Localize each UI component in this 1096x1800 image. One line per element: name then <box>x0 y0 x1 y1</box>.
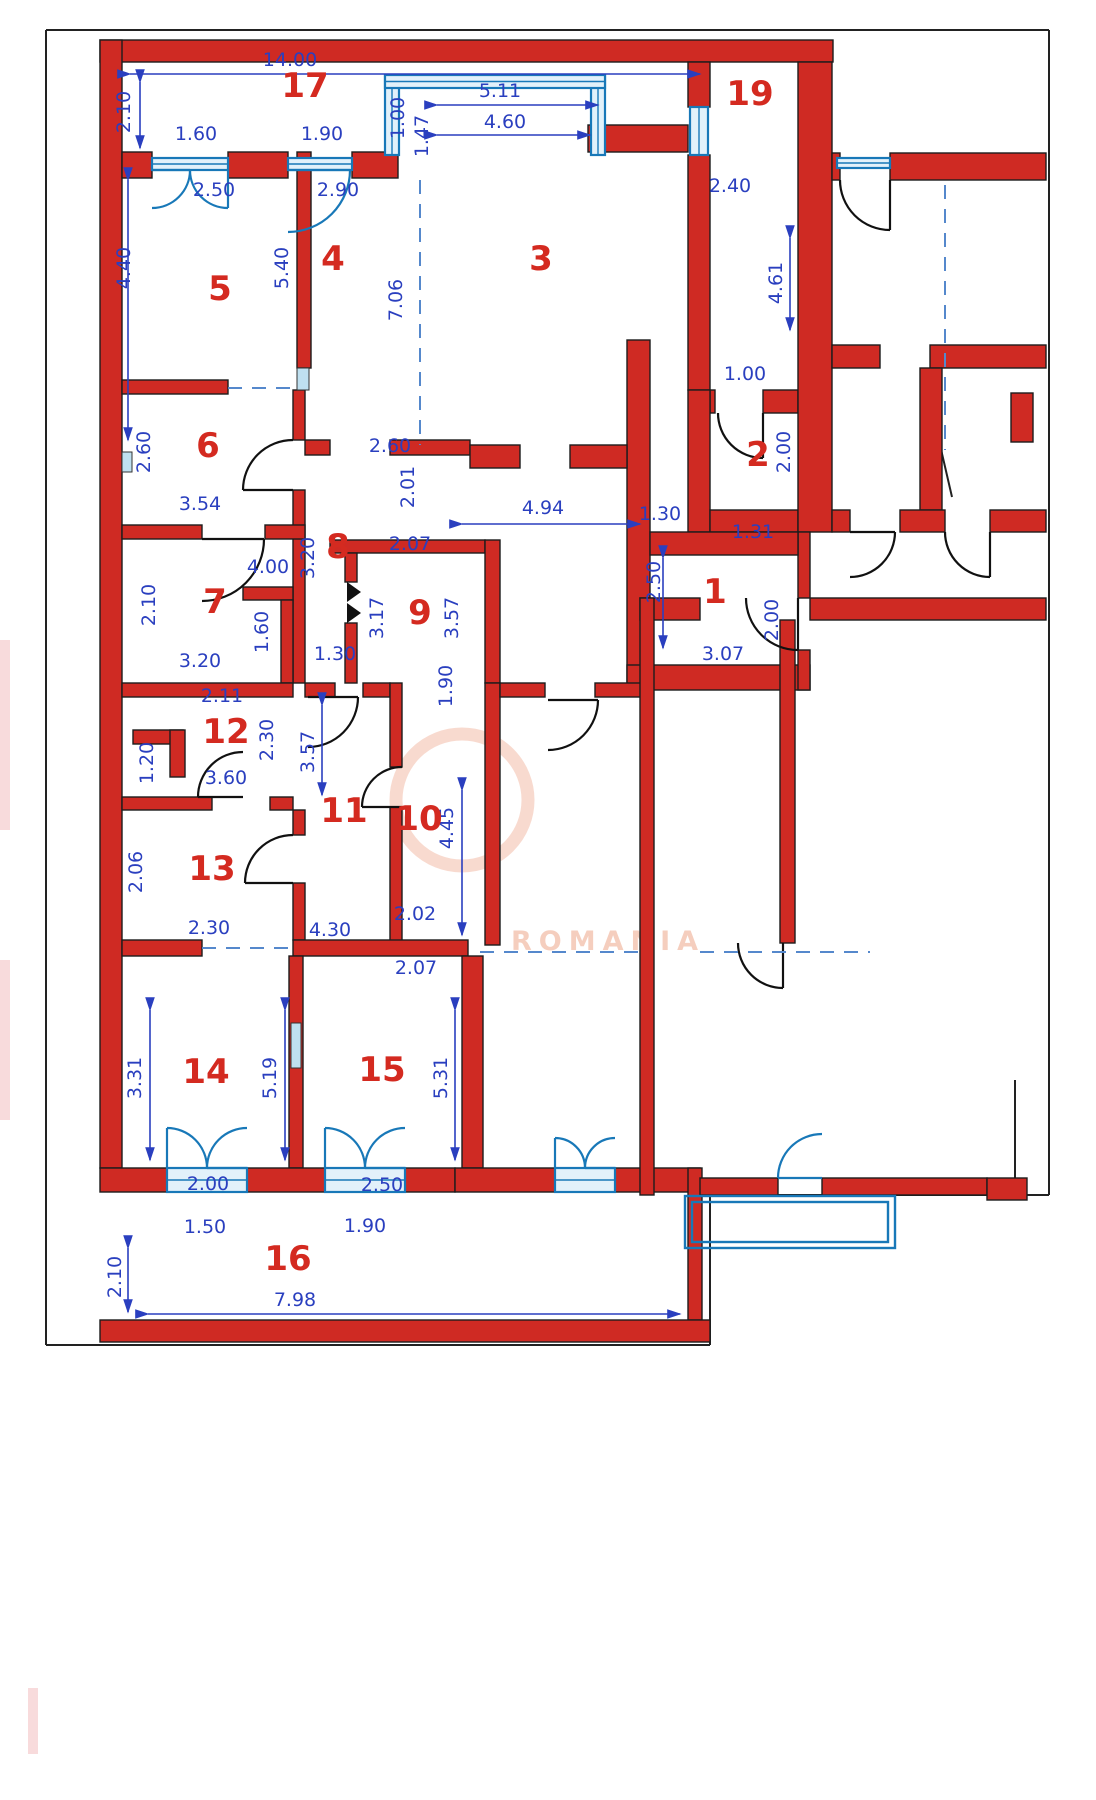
dim-label: 2.00 <box>773 431 795 473</box>
dim-label: 3.17 <box>366 597 388 639</box>
wall <box>122 797 212 810</box>
wall <box>832 345 880 368</box>
wall <box>822 1178 987 1195</box>
room-label-10: 10 <box>395 799 442 839</box>
room-label-1: 1 <box>703 572 727 612</box>
wall <box>810 598 1046 620</box>
dim-label: 4.60 <box>484 111 526 133</box>
door-swing-arc <box>548 700 598 750</box>
wall <box>305 440 330 455</box>
wall <box>122 380 228 394</box>
room-label-13: 13 <box>188 849 235 889</box>
wall <box>987 1178 1027 1200</box>
wall <box>920 368 942 510</box>
wall <box>297 152 311 368</box>
room-label-8: 8 <box>326 527 350 567</box>
dim-label: 1.30 <box>639 503 681 525</box>
dim-label: 3.60 <box>205 767 247 789</box>
door-swing-arc <box>850 532 895 577</box>
door-swing-arc <box>585 1138 615 1168</box>
room-label-7: 7 <box>203 582 227 622</box>
wall <box>363 683 390 697</box>
dim-label: 1.30 <box>314 643 356 665</box>
room-label-4: 4 <box>321 239 345 279</box>
balcony-railing <box>685 1196 895 1248</box>
room-label-12: 12 <box>202 712 249 752</box>
door-swing-arc <box>738 943 783 988</box>
dim-label: 5.40 <box>271 247 293 289</box>
door-swing-arc <box>840 180 890 230</box>
wall <box>780 620 795 943</box>
door-swing-arc <box>152 170 190 208</box>
dim-label: 2.30 <box>256 719 278 761</box>
dim-label: 2.00 <box>187 1173 229 1195</box>
dim-label: 2.07 <box>395 957 437 979</box>
door-swing-arc <box>243 440 293 490</box>
wall <box>700 1178 778 1195</box>
dim-label: 4.00 <box>247 556 289 578</box>
dim-label: 1.90 <box>435 665 457 707</box>
wall <box>293 390 305 440</box>
dim-label: 5.31 <box>430 1057 452 1099</box>
wall <box>930 345 1046 368</box>
wall <box>640 598 654 1195</box>
wall <box>405 1168 455 1192</box>
wall <box>100 40 122 1168</box>
wall <box>900 510 945 532</box>
dim-label: 4.94 <box>522 497 564 519</box>
dim-label: 2.07 <box>389 533 431 555</box>
dim-label: 1.60 <box>175 123 217 145</box>
room-label-16: 16 <box>264 1239 311 1279</box>
dim-label: 1.60 <box>251 611 273 653</box>
wall <box>390 683 402 767</box>
wall <box>228 152 288 178</box>
wall <box>455 1168 555 1192</box>
room-label-11: 11 <box>320 791 367 831</box>
dim-label: 2.30 <box>188 917 230 939</box>
wall <box>293 490 305 683</box>
wall <box>122 152 152 178</box>
door-swing-arc <box>945 532 990 577</box>
room-label-17: 17 <box>281 66 328 106</box>
wall <box>1011 393 1033 442</box>
dim-label: 2.50 <box>361 1174 403 1196</box>
dim-label: 1.90 <box>301 123 343 145</box>
scan-smudge <box>0 960 10 1120</box>
room-label-6: 6 <box>196 426 220 466</box>
wall <box>281 600 293 683</box>
bifold-door-icon <box>347 582 361 602</box>
dim-label: 3.31 <box>124 1057 146 1099</box>
wall <box>100 40 833 62</box>
door-swing-arc <box>207 1128 247 1168</box>
dim-label: 3.20 <box>179 650 221 672</box>
wall <box>832 510 850 532</box>
dim-label: 4.61 <box>765 262 787 304</box>
wall <box>650 532 798 555</box>
dim-label: 2.50 <box>193 179 235 201</box>
room-label-15: 15 <box>358 1050 405 1090</box>
wall <box>485 540 500 683</box>
dim-label: 2.11 <box>201 685 243 707</box>
wall <box>763 390 798 413</box>
dim-label: 2.01 <box>397 466 419 508</box>
dim-label: 3.20 <box>297 537 319 579</box>
floorplan-canvas: Apartment floor plan with room numbers a… <box>0 0 1096 1800</box>
door-swing-arc <box>778 1134 822 1178</box>
wall <box>122 940 202 956</box>
dim-label: 5.19 <box>259 1057 281 1099</box>
wall <box>500 683 545 697</box>
dim-label: 5.11 <box>479 80 521 102</box>
wall <box>485 683 500 945</box>
dim-label: 2.40 <box>709 175 751 197</box>
dim-label: 1.00 <box>724 363 766 385</box>
balcony-railing <box>692 1202 888 1242</box>
wall <box>798 650 810 690</box>
dim-label: 1.31 <box>732 521 774 543</box>
dim-label: 2.50 <box>643 561 665 603</box>
pillar <box>291 1023 301 1068</box>
dim-label: 1.00 <box>387 97 409 139</box>
wall <box>270 797 293 810</box>
dim-label: 3.57 <box>297 731 319 773</box>
room-label-14: 14 <box>182 1052 229 1092</box>
dim-label: 3.07 <box>702 643 744 665</box>
dim-label: 2.60 <box>133 431 155 473</box>
door-swing-arc <box>555 1138 585 1168</box>
dim-label: 1.50 <box>184 1216 226 1238</box>
wall <box>570 445 627 468</box>
dim-label: 4.40 <box>113 247 135 289</box>
dim-label: 2.60 <box>369 435 411 457</box>
wall <box>798 532 810 598</box>
wall <box>990 510 1046 532</box>
wall <box>890 153 1046 180</box>
pillar <box>122 452 132 472</box>
floorplan-drawing: ROMANIA14.002.101.601.902.502.901.001.47… <box>0 0 1096 1800</box>
dim-label: 1.47 <box>411 115 433 157</box>
dim-label: 3.57 <box>441 597 463 639</box>
dim-label: 7.98 <box>274 1289 316 1311</box>
dim-label: 4.30 <box>309 919 351 941</box>
dim-label: 2.10 <box>138 584 160 626</box>
dim-label: 7.06 <box>385 279 407 321</box>
wall <box>243 587 293 600</box>
wall <box>293 940 468 956</box>
dim-label: 2.10 <box>104 1256 126 1298</box>
wall <box>688 62 710 107</box>
wall <box>462 956 483 1168</box>
dim-label: 3.54 <box>179 493 221 515</box>
wall <box>122 525 202 539</box>
dim-label: 2.90 <box>317 179 359 201</box>
dim-label: 1.20 <box>136 742 158 784</box>
scan-smudge <box>0 640 10 830</box>
wall <box>293 883 305 940</box>
wall <box>710 390 715 413</box>
wall <box>293 810 305 835</box>
wall <box>798 62 832 532</box>
room-label-19: 19 <box>726 74 773 114</box>
room-label-5: 5 <box>208 269 232 309</box>
bifold-door-icon <box>347 603 361 623</box>
wall <box>247 1168 325 1192</box>
wall <box>615 1168 700 1192</box>
dim-label: 2.00 <box>761 599 783 641</box>
scan-smudge <box>28 1688 38 1754</box>
door-swing-arc <box>325 1128 365 1168</box>
dim-label: 2.06 <box>125 851 147 893</box>
pillar <box>297 368 309 390</box>
wall <box>688 155 710 390</box>
door-swing-arc <box>245 835 293 883</box>
dim-label: 1.90 <box>344 1215 386 1237</box>
wall <box>305 683 335 697</box>
room-label-9: 9 <box>408 593 432 633</box>
door-swing-arc <box>167 1128 207 1168</box>
room-label-2: 2 <box>746 435 770 475</box>
wall <box>100 1320 710 1342</box>
wall <box>100 1168 167 1192</box>
wall <box>470 445 520 468</box>
dim-label: 2.02 <box>394 903 436 925</box>
door-swing-arc <box>365 1128 405 1168</box>
room-label-3: 3 <box>529 239 553 279</box>
dim-label: 2.10 <box>113 91 135 133</box>
wall <box>170 730 185 777</box>
wall <box>688 390 710 532</box>
